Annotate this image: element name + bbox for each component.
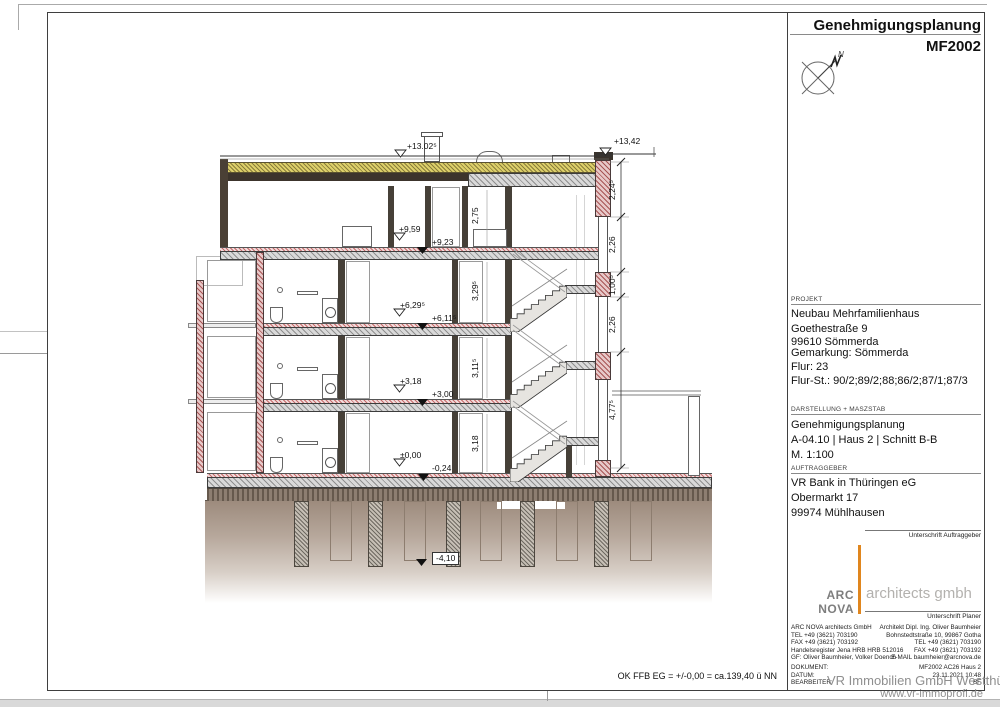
right-wall-masonry: [595, 352, 611, 380]
contact-right-line: E-MAIL baumheier@arcnova.de: [871, 654, 981, 662]
doc-row-label: DATUM:: [791, 672, 815, 680]
logo-accent-bar: [858, 545, 861, 614]
interior-wall: [338, 260, 345, 323]
watermark-url: www.vr-immoprofi.de: [786, 688, 983, 700]
contact-right: Architekt Dipl. Ing. Oliver Baumheier Bo…: [871, 624, 981, 662]
door-leaf: [346, 337, 370, 399]
auftraggeber-line-1: Obermarkt 17: [791, 492, 858, 504]
washing-machine: [322, 448, 338, 473]
elevation-label-roof-right: +13,42: [614, 136, 640, 146]
darstellung-line-2: M. 1:100: [791, 449, 834, 461]
pile: [404, 501, 426, 561]
sheet-title: Genehmigungsplanung: [790, 17, 981, 34]
stairwell-mullion: [576, 195, 577, 465]
contact-right-line: FAX +49 (3621) 703192: [871, 647, 981, 655]
right-wall-masonry: [595, 460, 611, 477]
washing-machine: [322, 298, 338, 323]
room-height-level2: 3,29⁵: [470, 270, 484, 312]
stair-landing: [565, 437, 600, 446]
projekt-line-4: Flur: 23: [791, 361, 828, 373]
pile: [520, 501, 535, 567]
contact-right-line: Bohnstedtstraße 10, 99867 Gotha: [871, 632, 981, 640]
washer-drum-icon: [325, 457, 336, 468]
contact-right-line: TEL +49 (3621) 703190: [871, 639, 981, 647]
shelf: [297, 291, 318, 295]
slab-300: [256, 403, 512, 412]
dim-chain-label-1: 2,26: [607, 221, 621, 269]
bottom-note: OK FFB EG = +/-0,00 = ca.139,40 ü NN: [460, 671, 777, 681]
fold-mark-lower: [0, 353, 47, 354]
elevation-label-6115: +6,11⁵: [432, 313, 456, 323]
washer-drum-icon: [325, 307, 336, 318]
pile: [294, 501, 309, 567]
attic-wall: [388, 186, 394, 247]
pile: [480, 501, 502, 561]
plan-sheet: +13.02⁵ +13,42 +9,59 +9,23 +6,29⁵ +6,11⁵…: [0, 0, 1000, 707]
sink: [277, 287, 283, 293]
elevation-label-roof-mid: +13.02⁵: [407, 141, 437, 151]
sheet-bottom-band: [0, 699, 1000, 707]
titleblock-divider: [787, 12, 788, 691]
roof-insulation: [221, 162, 609, 173]
auftraggeber-line-2: 99974 Mühlhausen: [791, 507, 885, 519]
attic-furniture: [342, 226, 372, 247]
dim-chain-label-0: 2,24⁵: [607, 166, 621, 214]
room-height-attic: 2,75: [470, 195, 484, 237]
left-exterior-wall: [256, 252, 264, 473]
pile: [556, 501, 578, 561]
pile: [630, 501, 652, 561]
attic-wall: [425, 186, 431, 247]
sink: [277, 437, 283, 443]
washer-drum-icon: [325, 383, 336, 394]
shelf: [297, 441, 318, 445]
balcony-column: [196, 280, 204, 473]
watermark-company: VR Immobilien GmbH Westthüringen: [827, 673, 1000, 688]
roof-slab-stairwell: [468, 173, 608, 187]
fold-mark-bottom: [547, 691, 548, 701]
elevation-label-6295: +6,29⁵: [400, 300, 425, 310]
elevation-label-959: +9,59: [399, 224, 421, 234]
interior-wall: [338, 412, 345, 473]
elevation-label-m024: -0,24: [432, 463, 451, 473]
roof-dome: [476, 151, 503, 162]
projekt-line-0: Neubau Mehrfamilienhaus: [791, 308, 919, 320]
fold-mark-upper: [0, 331, 47, 332]
auftraggeber-label: AUFTRAGGEBER: [791, 465, 981, 474]
dim-chain-label-3: 2,26: [607, 303, 621, 347]
sheet-edge-left: [18, 4, 19, 30]
signature-client-label: Unterschrift Auftraggeber: [865, 530, 981, 539]
sink: [277, 363, 283, 369]
pile: [594, 501, 609, 567]
toilet: [270, 307, 283, 323]
projekt-line-5: Flur-St.: 90/2;89/2;88;86/2;87/1;87/3: [791, 375, 968, 387]
darstellung-line-0: Genehmigungsplanung: [791, 419, 905, 431]
door-leaf: [346, 413, 370, 473]
attic-left-wall: [220, 159, 228, 252]
logo-arcnova: ARC NOVA: [791, 588, 854, 616]
dim-chain-label-2: 1,00⁵: [607, 263, 621, 307]
interior-wall: [452, 412, 458, 473]
doc-row: DOKUMENT: MF2002 AC26 Haus 2: [791, 664, 981, 672]
toilet: [270, 383, 283, 399]
washing-machine: [322, 374, 338, 399]
elevation-label-318: +3,18: [400, 376, 422, 386]
stair-flight: [510, 360, 567, 408]
toilet: [270, 457, 283, 473]
attic-wall: [462, 186, 468, 247]
projekt-line-1: Goethestraße 9: [791, 323, 867, 335]
elevation-label-923: +9,23: [432, 237, 454, 247]
projekt-label: PROJEKT: [791, 296, 981, 305]
title-underline: [790, 34, 981, 35]
north-label: N: [838, 50, 844, 59]
pile: [330, 501, 352, 561]
slab-611: [256, 327, 512, 336]
stairwell-mullion: [584, 195, 585, 465]
room-height-level1: 3,11⁵: [470, 347, 484, 389]
elevation-label-m410: -4,10: [432, 552, 459, 565]
elevation-label-300: +3,00: [432, 389, 454, 399]
balcony-railing: [207, 336, 256, 398]
roof-beam-band: [227, 173, 470, 181]
porch-column: [688, 396, 700, 476]
right-wall-cap: [594, 152, 613, 160]
sheet-edge-top: [18, 4, 987, 5]
stair-flight: [510, 434, 567, 482]
slab-923: [220, 251, 600, 260]
shelf: [297, 367, 318, 371]
darstellung-label: DARSTELLUNG + MASZSTAB: [791, 406, 981, 415]
ground-slab: [207, 477, 712, 488]
balcony-railing: [207, 260, 256, 322]
logo-architects: architects gmbh: [866, 585, 972, 602]
doc-row-label: DOKUMENT:: [791, 664, 828, 672]
auftraggeber-line-0: VR Bank in Thüringen eG: [791, 477, 916, 489]
doc-row-value: MF2002 AC26 Haus 2: [919, 664, 981, 672]
contact-right-line: Architekt Dipl. Ing. Oliver Baumheier: [871, 624, 981, 632]
balcony-railing: [207, 412, 256, 471]
dim-chain-label-4: 4,77⁵: [607, 388, 621, 432]
signature-planner-label: Unterschrift Planer: [865, 611, 981, 620]
elevation-label-000: ±0,00: [400, 450, 421, 460]
stair-flight: [510, 284, 567, 332]
pile: [368, 501, 383, 567]
door-leaf: [346, 261, 370, 323]
projekt-line-3: Gemarkung: Sömmerda: [791, 347, 908, 359]
darstellung-line-1: A-04.10 | Haus 2 | Schnitt B-B: [791, 434, 937, 446]
room-height-eg: 3,18: [470, 423, 484, 465]
interior-wall: [338, 336, 345, 399]
ground-ballast: [207, 488, 712, 501]
